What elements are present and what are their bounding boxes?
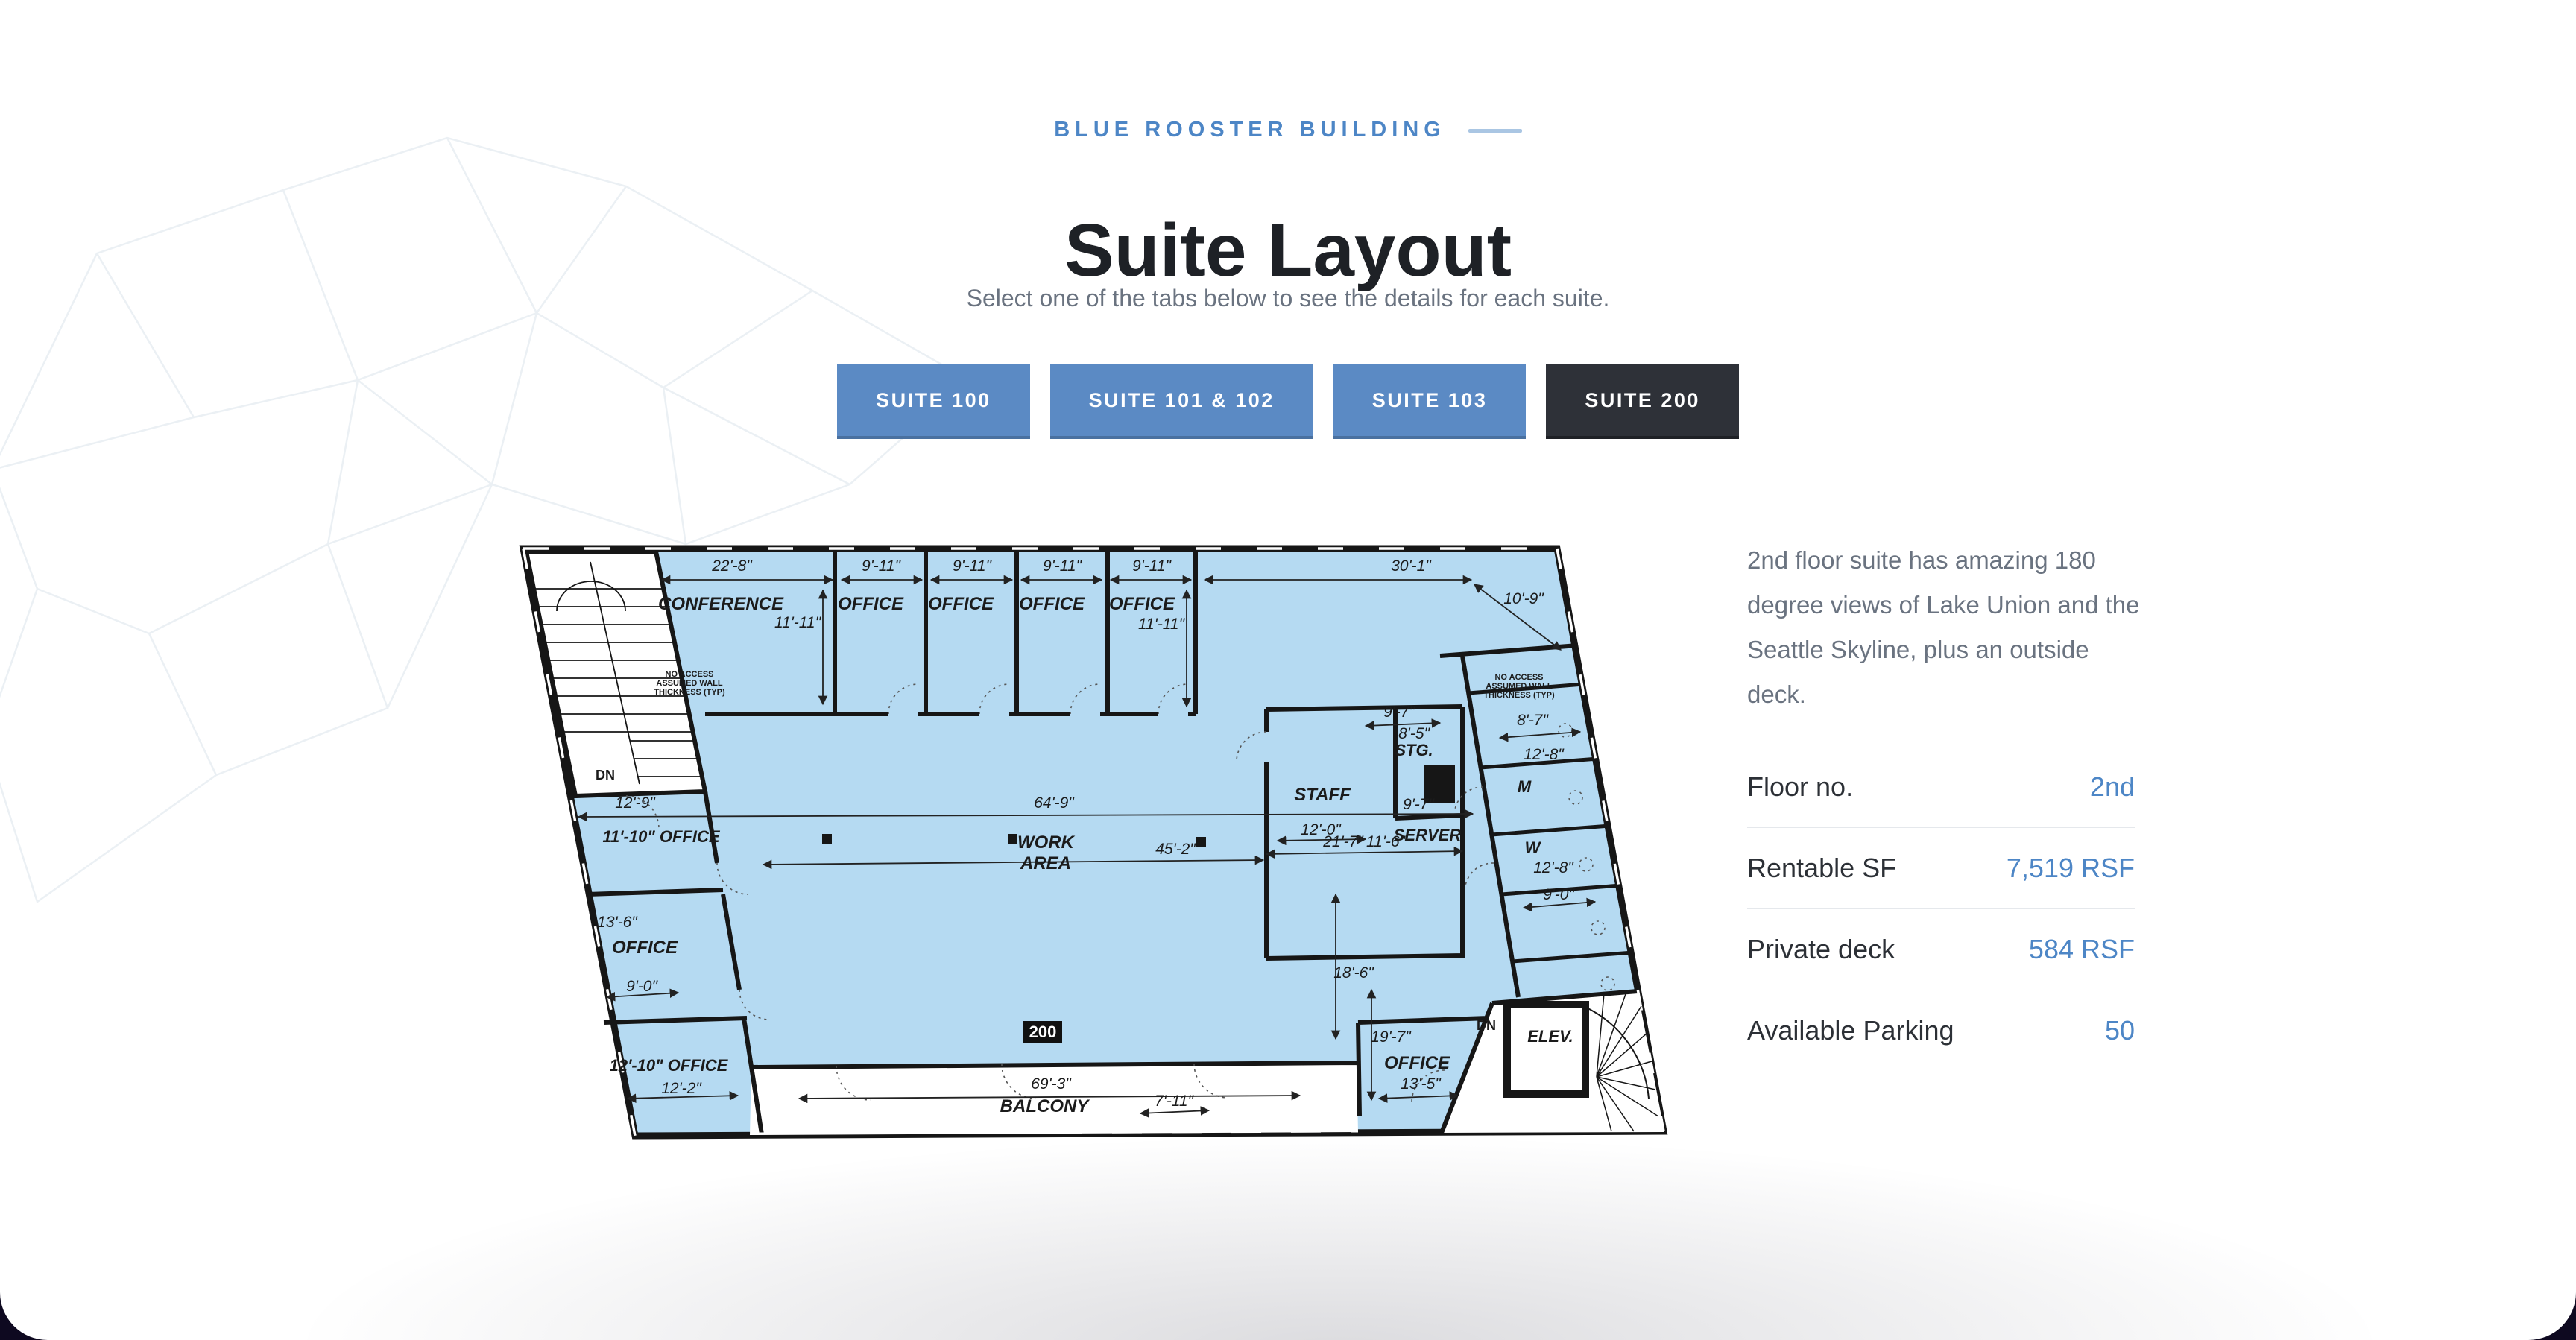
plan-label: DN [596, 768, 615, 783]
plan-label: 64'-9" [1034, 794, 1075, 812]
plan-label: OFFICE [1384, 1053, 1450, 1073]
plan-label: OFFICE [928, 594, 994, 614]
plan-label: ELEV. [1527, 1027, 1573, 1046]
detail-label: Available Parking [1747, 1015, 1954, 1046]
plan-label: 11'-11" [1138, 616, 1186, 633]
plan-label: 11'-6" [1366, 833, 1406, 850]
plan-label: ASSUMED WALL [1486, 682, 1553, 691]
plan-label: 9'-11" [953, 557, 992, 575]
suite-details-panel: 2nd floor suite has amazing 180 degree v… [1747, 538, 2153, 1071]
detail-row: Floor no.2nd [1747, 747, 2135, 828]
plan-label: 11'-11" [774, 614, 822, 631]
plan-label: 8'-5" [1398, 725, 1430, 742]
detail-label: Rentable SF [1747, 853, 1896, 884]
plan-label: 12'-9" [615, 794, 656, 812]
plan-label: 19'-7" [1371, 1028, 1412, 1046]
tab-suite-101-102[interactable]: SUITE 101 & 102 [1050, 364, 1313, 439]
suite-tabs: SUITE 100SUITE 101 & 102SUITE 103SUITE 2… [0, 364, 2576, 439]
plan-label: THICKNESS (TYP) [1483, 691, 1555, 700]
detail-value: 2nd [2090, 771, 2135, 803]
eyebrow-text: BLUE ROOSTER BUILDING [1054, 118, 1446, 142]
detail-label: Private deck [1747, 934, 1895, 965]
suite-number-text: 200 [1029, 1023, 1057, 1041]
plan-label: 12'-8" [1533, 859, 1574, 876]
plan-label: NO ACCESS [1495, 673, 1544, 682]
page-title: Suite Layout [0, 208, 2576, 294]
floor-plan: 200 CONFERENCEOFFICEOFFICEOFFICEOFFICEWO… [516, 544, 1670, 1144]
plan-label: 9'-11" [1043, 557, 1082, 575]
plan-label: 10'-9" [1503, 590, 1544, 607]
plan-label: BALCONY [1000, 1096, 1090, 1116]
plan-label: ASSUMED WALL [656, 679, 723, 688]
plan-label: 69'-3" [1031, 1075, 1072, 1093]
plan-label: THICKNESS (TYP) [654, 688, 725, 697]
plan-label: 45'-2" [1155, 841, 1196, 858]
plan-label: 9'-11" [1132, 557, 1172, 575]
detail-row: Private deck584 RSF [1747, 909, 2135, 990]
plan-label: 12'-2" [661, 1080, 702, 1097]
plan-label: STAFF [1294, 785, 1351, 805]
plan-label: AREA [1020, 853, 1071, 873]
suite-number-badge: 200 [1023, 1021, 1062, 1043]
detail-label: Floor no. [1747, 771, 1853, 803]
plan-label: 21'-7" [1322, 833, 1364, 850]
plan-label: M [1518, 777, 1532, 796]
plan-label: 9'-0" [626, 978, 658, 995]
detail-value: 50 [2105, 1015, 2135, 1046]
plan-label: OFFICE [1109, 594, 1175, 614]
suite-description: 2nd floor suite has amazing 180 degree v… [1747, 538, 2153, 717]
tab-suite-103[interactable]: SUITE 103 [1333, 364, 1527, 439]
eyebrow-dash [1468, 129, 1522, 133]
plan-label: NO ACCESS [666, 670, 714, 679]
plan-label: WORK [1017, 832, 1076, 853]
detail-row: Available Parking50 [1747, 990, 2135, 1071]
plan-label: 9'-7" [1403, 796, 1435, 813]
plan-label: 9'-11" [862, 557, 901, 575]
tab-suite-200[interactable]: SUITE 200 [1546, 364, 1739, 439]
plan-label: 12'-10" OFFICE [610, 1056, 729, 1075]
page-subtitle: Select one of the tabs below to see the … [0, 285, 2576, 312]
plan-label: 9'-7" [1383, 704, 1415, 721]
plan-label: CONFERENCE [658, 594, 784, 614]
plan-label: 7'-11" [1155, 1093, 1194, 1110]
plan-label: 22'-8" [711, 557, 753, 575]
floor-plan-drawing: 200 CONFERENCEOFFICEOFFICEOFFICEOFFICEWO… [516, 544, 1670, 1140]
detail-value: 584 RSF [2029, 934, 2135, 965]
plan-label: 18'-6" [1333, 964, 1374, 982]
plan-label: 9'-0" [1543, 886, 1575, 903]
page-sheet: BLUE ROOSTER BUILDING Suite Layout Selec… [0, 0, 2576, 1340]
tab-suite-100[interactable]: SUITE 100 [837, 364, 1030, 439]
plan-label: DN [1477, 1018, 1496, 1033]
plan-label: 13'-5" [1401, 1075, 1442, 1093]
plan-label: W [1525, 838, 1542, 857]
detail-row: Rentable SF7,519 RSF [1747, 828, 2135, 909]
plan-label: OFFICE [612, 938, 678, 958]
plan-label: STG. [1395, 741, 1433, 759]
plan-label: 30'-1" [1391, 557, 1432, 575]
section-eyebrow: BLUE ROOSTER BUILDING [0, 118, 2576, 142]
plan-label: 13'-6" [597, 914, 638, 931]
plan-label: 12'-8" [1524, 746, 1565, 763]
plan-label: 8'-7" [1517, 712, 1549, 729]
plan-label: OFFICE [1019, 594, 1085, 614]
plan-label: OFFICE [838, 594, 904, 614]
suite-detail-rows: Floor no.2ndRentable SF7,519 RSFPrivate … [1747, 747, 2135, 1071]
plan-label: 11'-10" OFFICE [602, 827, 720, 846]
detail-value: 7,519 RSF [2007, 853, 2135, 884]
